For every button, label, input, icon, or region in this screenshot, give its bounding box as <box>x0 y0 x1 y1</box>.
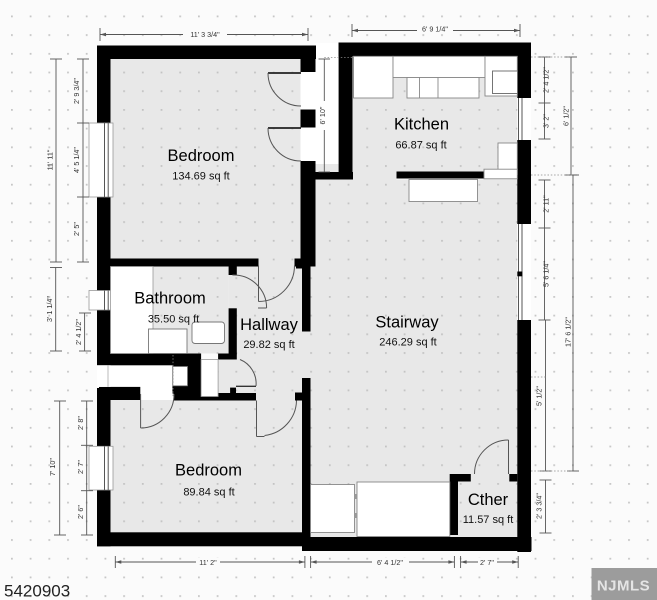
svg-text:11' 3 3/4": 11' 3 3/4" <box>190 30 220 39</box>
svg-text:11.57 sq ft: 11.57 sq ft <box>463 514 514 526</box>
svg-text:3' 2": 3' 2" <box>542 114 551 128</box>
svg-text:2' 7": 2' 7" <box>76 460 85 474</box>
svg-text:6' 1/2": 6' 1/2" <box>562 106 571 126</box>
svg-text:2' 9 3/4": 2' 9 3/4" <box>72 78 81 104</box>
svg-text:Stairway: Stairway <box>375 314 439 332</box>
svg-text:2' 8": 2' 8" <box>76 416 85 430</box>
svg-text:4' 5 1/4": 4' 5 1/4" <box>72 147 81 173</box>
svg-text:Kitchen: Kitchen <box>394 116 449 134</box>
svg-text:11' 11": 11' 11" <box>46 149 55 170</box>
svg-text:5' 1/2": 5' 1/2" <box>535 386 544 406</box>
svg-text:2' 11": 2' 11" <box>542 195 551 213</box>
svg-text:7' 10": 7' 10" <box>48 458 57 476</box>
svg-text:89.84 sq ft: 89.84 sq ft <box>183 487 234 499</box>
svg-text:Bedroom: Bedroom <box>175 462 242 480</box>
svg-text:Bathroom: Bathroom <box>134 290 206 308</box>
svg-text:5' 6 1/4": 5' 6 1/4" <box>542 261 551 287</box>
svg-text:Bedroom: Bedroom <box>168 147 235 165</box>
svg-text:2' 7": 2' 7" <box>480 558 494 567</box>
svg-text:29.82 sq ft: 29.82 sq ft <box>243 339 294 351</box>
svg-text:NJMLS: NJMLS <box>597 578 650 595</box>
svg-text:35.50 sq ft: 35.50 sq ft <box>148 314 199 326</box>
svg-text:5420903: 5420903 <box>4 582 70 600</box>
svg-text:Cther: Cther <box>468 491 509 509</box>
svg-text:2' 4 1/2": 2' 4 1/2" <box>74 319 83 345</box>
svg-text:2' 5": 2' 5" <box>72 222 81 236</box>
svg-text:3' 1 1/4": 3' 1 1/4" <box>45 296 54 322</box>
svg-text:Hallway: Hallway <box>240 316 299 334</box>
svg-text:2' 6": 2' 6" <box>76 505 85 519</box>
svg-text:11' 2": 11' 2" <box>199 558 217 567</box>
svg-text:6' 9 1/4": 6' 9 1/4" <box>422 25 448 34</box>
svg-text:2' 4 1/2": 2' 4 1/2" <box>542 67 551 93</box>
svg-text:246.29 sq ft: 246.29 sq ft <box>379 337 437 349</box>
svg-text:2' 3 3/4": 2' 3 3/4" <box>535 493 544 519</box>
svg-text:134.69 sq ft: 134.69 sq ft <box>172 171 230 183</box>
svg-text:6' 4 1/2": 6' 4 1/2" <box>377 558 403 567</box>
svg-text:66.87 sq ft: 66.87 sq ft <box>395 140 446 152</box>
svg-text:17' 6 1/2": 17' 6 1/2" <box>564 317 573 347</box>
svg-text:6' 10": 6' 10" <box>318 106 327 124</box>
